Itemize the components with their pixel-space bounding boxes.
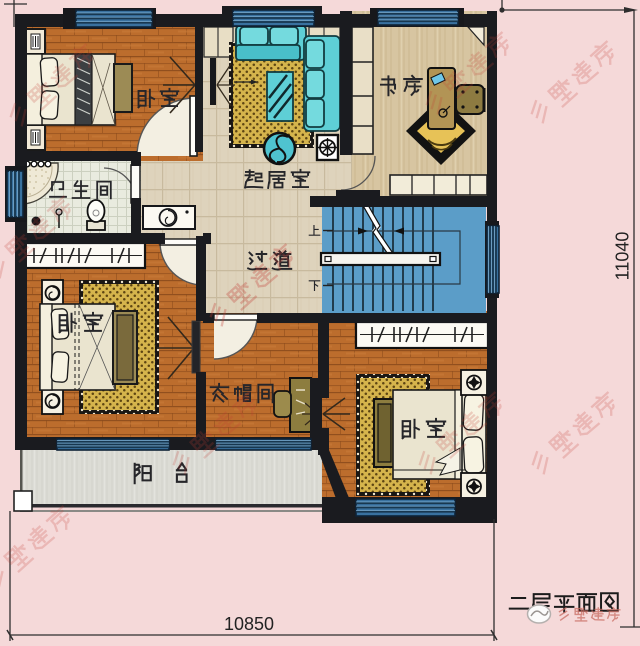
svg-text:10850: 10850 (224, 614, 274, 634)
svg-text:11040: 11040 (613, 232, 633, 281)
